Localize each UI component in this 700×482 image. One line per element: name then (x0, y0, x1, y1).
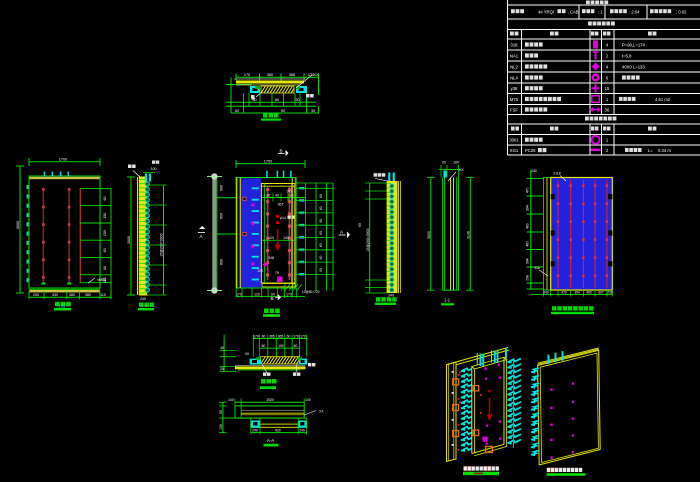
svg-text:394: 394 (526, 258, 530, 264)
svg-text:M75: M75 (510, 97, 519, 102)
svg-text:60: 60 (103, 266, 107, 270)
svg-text:PC25: PC25 (525, 148, 536, 153)
svg-text:: 2:04: : 2:04 (629, 9, 640, 14)
svg-text:3146: 3146 (467, 231, 471, 239)
svg-text:25: 25 (220, 367, 224, 371)
svg-text:0.34 m: 0.34 m (658, 148, 671, 153)
svg-text:y36: y36 (511, 86, 518, 91)
svg-text:36: 36 (605, 107, 610, 112)
svg-text:60: 60 (275, 98, 279, 102)
svg-text:20: 20 (442, 161, 446, 165)
svg-text:365: 365 (289, 73, 295, 77)
svg-text:360: 360 (267, 73, 273, 77)
svg-text:140: 140 (305, 398, 311, 402)
svg-text:50: 50 (219, 410, 223, 414)
svg-text:15@200=3000: 15@200=3000 (160, 233, 164, 256)
svg-text:75: 75 (275, 271, 279, 275)
svg-text:120: 120 (257, 269, 263, 273)
svg-text:2118: 2118 (553, 172, 560, 176)
svg-text:365: 365 (269, 334, 275, 338)
svg-text:40: 40 (220, 346, 224, 350)
svg-text:380: 380 (69, 293, 75, 297)
svg-text:15: 15 (605, 86, 610, 91)
svg-text:60: 60 (103, 248, 107, 252)
svg-text:60: 60 (262, 344, 266, 348)
svg-text:238: 238 (607, 291, 613, 295)
svg-text:XX: XX (459, 168, 464, 172)
svg-text:xMB5: xMB5 (97, 278, 106, 282)
svg-text:60: 60 (294, 344, 298, 348)
svg-text:3000: 3000 (427, 231, 431, 239)
svg-text:B: B (270, 296, 273, 301)
svg-text:123: 123 (268, 236, 274, 240)
svg-text:150: 150 (103, 230, 107, 236)
svg-text:607: 607 (598, 291, 604, 295)
svg-text:60: 60 (235, 109, 239, 113)
svg-text:60: 60 (287, 334, 291, 338)
svg-text:240: 240 (140, 297, 146, 301)
svg-text:NA1: NA1 (510, 53, 519, 58)
svg-text:240: 240 (33, 293, 39, 297)
svg-text:170: 170 (253, 334, 259, 338)
svg-text:60: 60 (262, 334, 266, 338)
svg-text:t=5.8: t=5.8 (622, 53, 632, 58)
svg-text:600: 600 (220, 259, 224, 265)
svg-text:40: 40 (275, 193, 279, 197)
svg-text:L=: L= (648, 148, 653, 153)
svg-text:120: 120 (254, 292, 260, 296)
svg-text:NL2: NL2 (510, 64, 518, 69)
svg-text:394: 394 (526, 205, 530, 211)
svg-text:470: 470 (526, 187, 530, 193)
svg-text:348: 348 (268, 256, 274, 260)
svg-text:1920: 1920 (266, 398, 274, 402)
svg-text:XX: XX (313, 72, 319, 77)
svg-text:394: 394 (574, 291, 580, 295)
svg-text:60: 60 (319, 268, 323, 272)
svg-text:4# YRQ/: 4# YRQ/ (538, 9, 555, 14)
svg-text:380: 380 (85, 293, 91, 297)
svg-text:P=90,L=174: P=90,L=174 (622, 42, 645, 47)
svg-text:60: 60 (319, 206, 323, 210)
svg-text:240: 240 (531, 169, 537, 173)
svg-text:: CAB: : CAB (568, 9, 579, 14)
svg-text:3001: 3001 (509, 138, 519, 143)
svg-text:460: 460 (526, 241, 530, 247)
svg-text:238: 238 (526, 275, 530, 281)
svg-text:: 1: : 1 (598, 9, 603, 14)
svg-text:365: 365 (278, 334, 284, 338)
svg-text:12@60=720: 12@60=720 (302, 290, 320, 294)
svg-text:90: 90 (281, 109, 285, 113)
svg-text:60: 60 (319, 243, 323, 247)
svg-text:240: 240 (543, 291, 549, 295)
svg-text:150: 150 (278, 344, 284, 348)
svg-text:B: B (279, 149, 282, 154)
svg-text:30: 30 (311, 109, 315, 113)
svg-text:NL4: NL4 (510, 75, 518, 80)
svg-text:100: 100 (151, 167, 157, 171)
svg-text:600: 600 (220, 213, 224, 219)
svg-text:3000: 3000 (16, 221, 20, 229)
svg-text:A: A (199, 234, 202, 239)
svg-text:60: 60 (358, 223, 362, 227)
svg-text:460: 460 (526, 223, 530, 229)
svg-text:XX: XX (319, 410, 324, 414)
svg-text:1-1: 1-1 (444, 298, 451, 303)
svg-text:1700: 1700 (264, 160, 272, 164)
svg-text:367: 367 (278, 203, 284, 207)
svg-text:60: 60 (319, 219, 323, 223)
svg-text:15@200=3000: 15@200=3000 (366, 228, 370, 251)
svg-text:240: 240 (388, 294, 394, 298)
svg-text:430: 430 (52, 293, 58, 297)
svg-text:150: 150 (103, 213, 107, 219)
svg-text:342: 342 (287, 190, 293, 194)
svg-text:60: 60 (319, 256, 323, 260)
svg-text:100: 100 (453, 161, 459, 165)
svg-text:60: 60 (319, 231, 323, 235)
svg-text:240: 240 (299, 428, 305, 432)
svg-text:170: 170 (244, 73, 250, 77)
svg-text:140: 140 (283, 236, 289, 240)
svg-text:60: 60 (103, 197, 107, 201)
svg-text:170: 170 (293, 334, 299, 338)
svg-text:3000: 3000 (127, 236, 131, 244)
svg-text:470: 470 (561, 291, 567, 295)
svg-text:170: 170 (300, 334, 306, 338)
svg-text:FSF: FSF (510, 107, 518, 112)
svg-text:318: 318 (534, 266, 540, 270)
svg-text:A-A: A-A (267, 438, 274, 443)
svg-text:115: 115 (100, 293, 106, 297)
svg-text:130: 130 (219, 424, 223, 430)
svg-text:30: 30 (295, 98, 299, 102)
svg-text:600: 600 (220, 185, 224, 191)
svg-text:4.61 m2: 4.61 m2 (655, 97, 671, 102)
svg-text:30: 30 (290, 193, 294, 197)
svg-text:p14: p14 (280, 216, 286, 220)
svg-text:60: 60 (319, 194, 323, 198)
svg-text:40X0 L=133: 40X0 L=133 (622, 64, 645, 69)
svg-text:920: 920 (275, 428, 281, 432)
svg-text:170: 170 (286, 292, 292, 296)
svg-text:240: 240 (252, 428, 258, 432)
svg-text:140: 140 (228, 398, 234, 402)
svg-text:018: 018 (511, 42, 519, 47)
svg-text:1700: 1700 (59, 158, 67, 162)
svg-text:170: 170 (236, 292, 242, 296)
svg-text:: 0.02: : 0.02 (676, 9, 687, 14)
svg-text:A: A (340, 230, 343, 235)
svg-text:460: 460 (586, 291, 592, 295)
svg-text:XG1: XG1 (510, 148, 519, 153)
svg-text:38: 38 (266, 193, 270, 197)
